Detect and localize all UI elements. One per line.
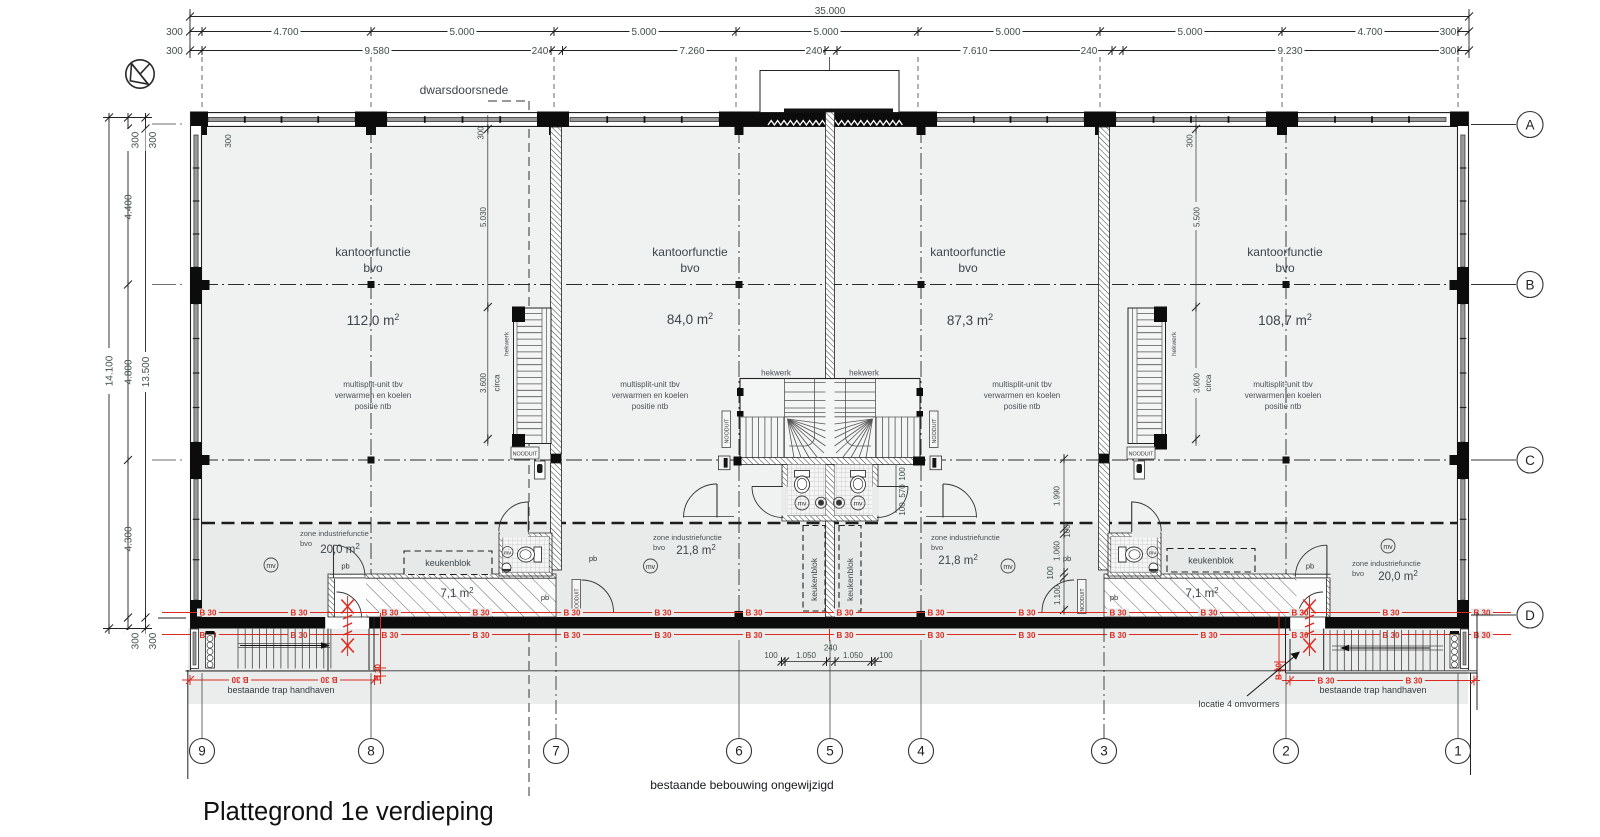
svg-text:verwarmen en koelen: verwarmen en koelen — [1245, 391, 1321, 400]
svg-text:kantoorfunctie: kantoorfunctie — [335, 245, 411, 259]
svg-text:B 30: B 30 — [1201, 609, 1218, 618]
svg-text:B 30: B 30 — [1201, 631, 1218, 640]
svg-text:1: 1 — [1454, 744, 1462, 759]
svg-text:B 30: B 30 — [1474, 631, 1491, 640]
svg-text:bvo: bvo — [680, 261, 700, 275]
svg-text:bvo: bvo — [363, 261, 383, 275]
svg-text:570: 570 — [898, 484, 907, 498]
svg-text:zone industriefunctie: zone industriefunctie — [300, 529, 369, 538]
svg-text:6: 6 — [735, 744, 743, 759]
svg-text:5.000: 5.000 — [995, 27, 1020, 38]
svg-text:pb: pb — [1306, 562, 1314, 571]
svg-text:positie ntb: positie ntb — [632, 402, 669, 411]
svg-text:hekwerk: hekwerk — [1171, 331, 1178, 356]
svg-text:B 30: B 30 — [473, 631, 490, 640]
svg-text:100: 100 — [1046, 566, 1055, 580]
svg-text:8: 8 — [367, 744, 375, 759]
svg-text:240: 240 — [1081, 46, 1098, 57]
svg-text:21,8 m2: 21,8 m2 — [938, 553, 978, 567]
svg-text:13.500: 13.500 — [141, 356, 152, 387]
svg-text:108,7 m2: 108,7 m2 — [1258, 312, 1312, 328]
svg-text:300: 300 — [148, 632, 159, 649]
svg-text:positie ntb: positie ntb — [355, 402, 392, 411]
svg-text:kantoorfunctie: kantoorfunctie — [1247, 245, 1323, 259]
svg-text:B 30: B 30 — [382, 609, 399, 618]
svg-text:240: 240 — [824, 644, 838, 653]
svg-text:NOODUIT: NOODUIT — [1129, 452, 1155, 458]
svg-text:mv: mv — [1383, 544, 1393, 551]
svg-text:5.500: 5.500 — [1192, 206, 1201, 227]
svg-text:bvo: bvo — [958, 261, 978, 275]
svg-text:3.600: 3.600 — [479, 372, 488, 393]
svg-text:hekwerk: hekwerk — [504, 331, 511, 356]
svg-text:100: 100 — [764, 651, 778, 660]
svg-text:B 30: B 30 — [655, 609, 672, 618]
svg-text:bvo: bvo — [653, 543, 665, 552]
svg-text:zone industriefunctie: zone industriefunctie — [653, 533, 722, 542]
svg-text:bestaande bebouwing ongewijzig: bestaande bebouwing ongewijzigd — [650, 778, 833, 792]
svg-text:multisplit-unit tbv: multisplit-unit tbv — [343, 380, 403, 389]
svg-text:B 30: B 30 — [1110, 631, 1127, 640]
svg-text:300: 300 — [477, 126, 486, 140]
svg-text:circa: circa — [493, 374, 502, 391]
svg-text:300: 300 — [166, 27, 183, 38]
svg-text:B 30: B 30 — [564, 631, 581, 640]
svg-text:B 30: B 30 — [1019, 609, 1036, 618]
svg-text:1.100: 1.100 — [1053, 584, 1062, 605]
svg-text:bestaande trap handhaven: bestaande trap handhaven — [227, 685, 334, 695]
svg-text:300: 300 — [224, 134, 233, 148]
svg-text:100: 100 — [879, 651, 893, 660]
svg-text:B 30: B 30 — [382, 631, 399, 640]
svg-text:mv: mv — [266, 563, 276, 570]
svg-text:mv: mv — [646, 564, 656, 571]
svg-text:B 30: B 30 — [200, 609, 217, 618]
svg-text:4.700: 4.700 — [273, 27, 298, 38]
svg-text:keukenblok: keukenblok — [845, 557, 855, 601]
svg-text:kantoorfunctie: kantoorfunctie — [930, 245, 1006, 259]
svg-text:keukenblok: keukenblok — [425, 558, 471, 568]
svg-text:B 30: B 30 — [1019, 631, 1036, 640]
svg-text:pb: pb — [341, 562, 349, 571]
svg-text:4.700: 4.700 — [1357, 27, 1382, 38]
svg-text:2: 2 — [1282, 744, 1290, 759]
svg-text:3.600: 3.600 — [1192, 372, 1201, 393]
svg-text:300: 300 — [166, 46, 183, 57]
svg-text:B 30: B 30 — [231, 675, 248, 684]
svg-text:multisplit-unit tbv: multisplit-unit tbv — [992, 380, 1052, 389]
svg-text:kantoorfunctie: kantoorfunctie — [652, 245, 728, 259]
svg-text:bvo: bvo — [1352, 569, 1364, 578]
svg-text:5.030: 5.030 — [479, 206, 488, 227]
svg-text:7,1 m2: 7,1 m2 — [440, 586, 474, 600]
svg-text:4.300: 4.300 — [124, 526, 135, 551]
svg-text:mv: mv — [504, 551, 512, 557]
svg-text:pb: pb — [589, 554, 597, 563]
svg-text:9: 9 — [198, 744, 206, 759]
svg-text:87,3 m2: 87,3 m2 — [947, 312, 993, 328]
svg-text:B 30: B 30 — [746, 631, 763, 640]
svg-text:9.580: 9.580 — [364, 46, 389, 57]
svg-text:1.060: 1.060 — [1053, 540, 1062, 561]
svg-text:20,0 m2: 20,0 m2 — [1378, 569, 1418, 583]
svg-text:pb: pb — [541, 593, 549, 602]
svg-text:mv: mv — [854, 501, 863, 508]
svg-text:D: D — [1525, 608, 1535, 623]
svg-text:100: 100 — [898, 467, 907, 481]
svg-text:B 30: B 30 — [837, 609, 854, 618]
svg-text:B 30: B 30 — [1275, 663, 1284, 680]
svg-text:multisplit-unit tbv: multisplit-unit tbv — [620, 380, 680, 389]
svg-text:35.000: 35.000 — [815, 6, 846, 17]
svg-text:4: 4 — [917, 744, 925, 759]
svg-text:100: 100 — [1063, 524, 1072, 538]
svg-text:5.000: 5.000 — [813, 27, 838, 38]
svg-text:NOODUIT: NOODUIT — [725, 418, 731, 444]
svg-text:circa: circa — [1204, 374, 1213, 391]
svg-text:B 30: B 30 — [320, 675, 337, 684]
svg-text:A: A — [1525, 118, 1534, 133]
svg-text:5.000: 5.000 — [1177, 27, 1202, 38]
svg-text:pb: pb — [1110, 593, 1118, 602]
svg-text:keukenblok: keukenblok — [1188, 556, 1234, 566]
svg-text:keukenblok: keukenblok — [809, 557, 819, 601]
svg-text:1.050: 1.050 — [843, 651, 864, 660]
svg-text:B 30: B 30 — [928, 631, 945, 640]
svg-text:5: 5 — [826, 744, 834, 759]
svg-text:300: 300 — [131, 131, 142, 148]
svg-text:3: 3 — [1100, 744, 1108, 759]
svg-text:300: 300 — [131, 632, 142, 649]
svg-text:hekwerk: hekwerk — [849, 369, 880, 378]
svg-text:NOODUIT: NOODUIT — [513, 452, 539, 458]
svg-text:20,0 m2: 20,0 m2 — [320, 542, 360, 556]
svg-text:9.230: 9.230 — [1277, 46, 1302, 57]
svg-text:7: 7 — [552, 744, 560, 759]
svg-text:7,1 m2: 7,1 m2 — [1185, 586, 1219, 600]
svg-text:5.000: 5.000 — [631, 27, 656, 38]
svg-text:100: 100 — [898, 502, 907, 516]
svg-text:verwarmen en koelen: verwarmen en koelen — [612, 391, 688, 400]
svg-text:1.050: 1.050 — [796, 651, 817, 660]
svg-text:300: 300 — [1440, 27, 1457, 38]
svg-text:verwarmen en koelen: verwarmen en koelen — [335, 391, 411, 400]
svg-text:NOODUIT: NOODUIT — [932, 418, 938, 444]
svg-text:B 30: B 30 — [928, 609, 945, 618]
svg-text:7.260: 7.260 — [679, 46, 704, 57]
svg-text:zone industriefunctie: zone industriefunctie — [1352, 559, 1421, 568]
svg-text:4.800: 4.800 — [124, 359, 135, 384]
svg-text:4.400: 4.400 — [124, 194, 135, 219]
svg-text:5.000: 5.000 — [449, 27, 474, 38]
svg-text:B 30: B 30 — [1383, 631, 1400, 640]
svg-text:B 30: B 30 — [564, 609, 581, 618]
svg-text:bvo: bvo — [1275, 261, 1295, 275]
svg-text:multisplit-unit tbv: multisplit-unit tbv — [1253, 380, 1313, 389]
svg-text:240: 240 — [806, 46, 823, 57]
svg-text:B 30: B 30 — [746, 609, 763, 618]
svg-text:hekwerk: hekwerk — [761, 369, 792, 378]
svg-text:positie ntb: positie ntb — [1265, 402, 1302, 411]
svg-text:verwarmen en koelen: verwarmen en koelen — [984, 391, 1060, 400]
svg-text:B 30: B 30 — [291, 631, 308, 640]
svg-text:pb: pb — [1063, 554, 1071, 563]
svg-text:mv: mv — [798, 501, 807, 508]
svg-text:bvo: bvo — [931, 543, 943, 552]
svg-text:Plattegrond 1e verdieping: Plattegrond 1e verdieping — [203, 798, 494, 826]
svg-text:B 30: B 30 — [473, 609, 490, 618]
svg-text:240: 240 — [532, 46, 549, 57]
svg-text:zone industriefunctie: zone industriefunctie — [931, 533, 1000, 542]
svg-text:300: 300 — [1440, 46, 1457, 57]
svg-text:positie ntb: positie ntb — [1004, 402, 1041, 411]
svg-text:B 30: B 30 — [1474, 609, 1491, 618]
svg-text:B: B — [1525, 278, 1534, 293]
svg-text:bvo: bvo — [300, 539, 312, 548]
svg-text:B 30: B 30 — [291, 609, 308, 618]
svg-text:mv: mv — [1149, 551, 1157, 557]
svg-text:C: C — [1525, 453, 1535, 468]
svg-text:B 30: B 30 — [1110, 609, 1127, 618]
svg-text:21,8 m2: 21,8 m2 — [676, 543, 716, 557]
svg-text:dwarsdoorsnede: dwarsdoorsnede — [420, 83, 509, 97]
svg-text:B 30: B 30 — [1383, 609, 1400, 618]
svg-text:NOODUIT: NOODUIT — [1080, 588, 1086, 611]
svg-text:112,0 m2: 112,0 m2 — [347, 312, 400, 328]
svg-text:14.100: 14.100 — [105, 355, 116, 386]
svg-text:locatie 4 omvormers: locatie 4 omvormers — [1198, 699, 1280, 709]
svg-text:mv: mv — [1003, 564, 1013, 571]
svg-text:300: 300 — [1186, 134, 1195, 148]
svg-text:7.610: 7.610 — [962, 46, 987, 57]
svg-text:bestaande trap handhaven: bestaande trap handhaven — [1319, 685, 1426, 695]
svg-text:B 30: B 30 — [1292, 631, 1309, 640]
svg-text:B 30: B 30 — [655, 631, 672, 640]
svg-text:1.990: 1.990 — [1053, 485, 1062, 506]
svg-text:300: 300 — [148, 131, 159, 148]
svg-text:84,0 m2: 84,0 m2 — [667, 311, 713, 327]
svg-text:B 30: B 30 — [837, 631, 854, 640]
